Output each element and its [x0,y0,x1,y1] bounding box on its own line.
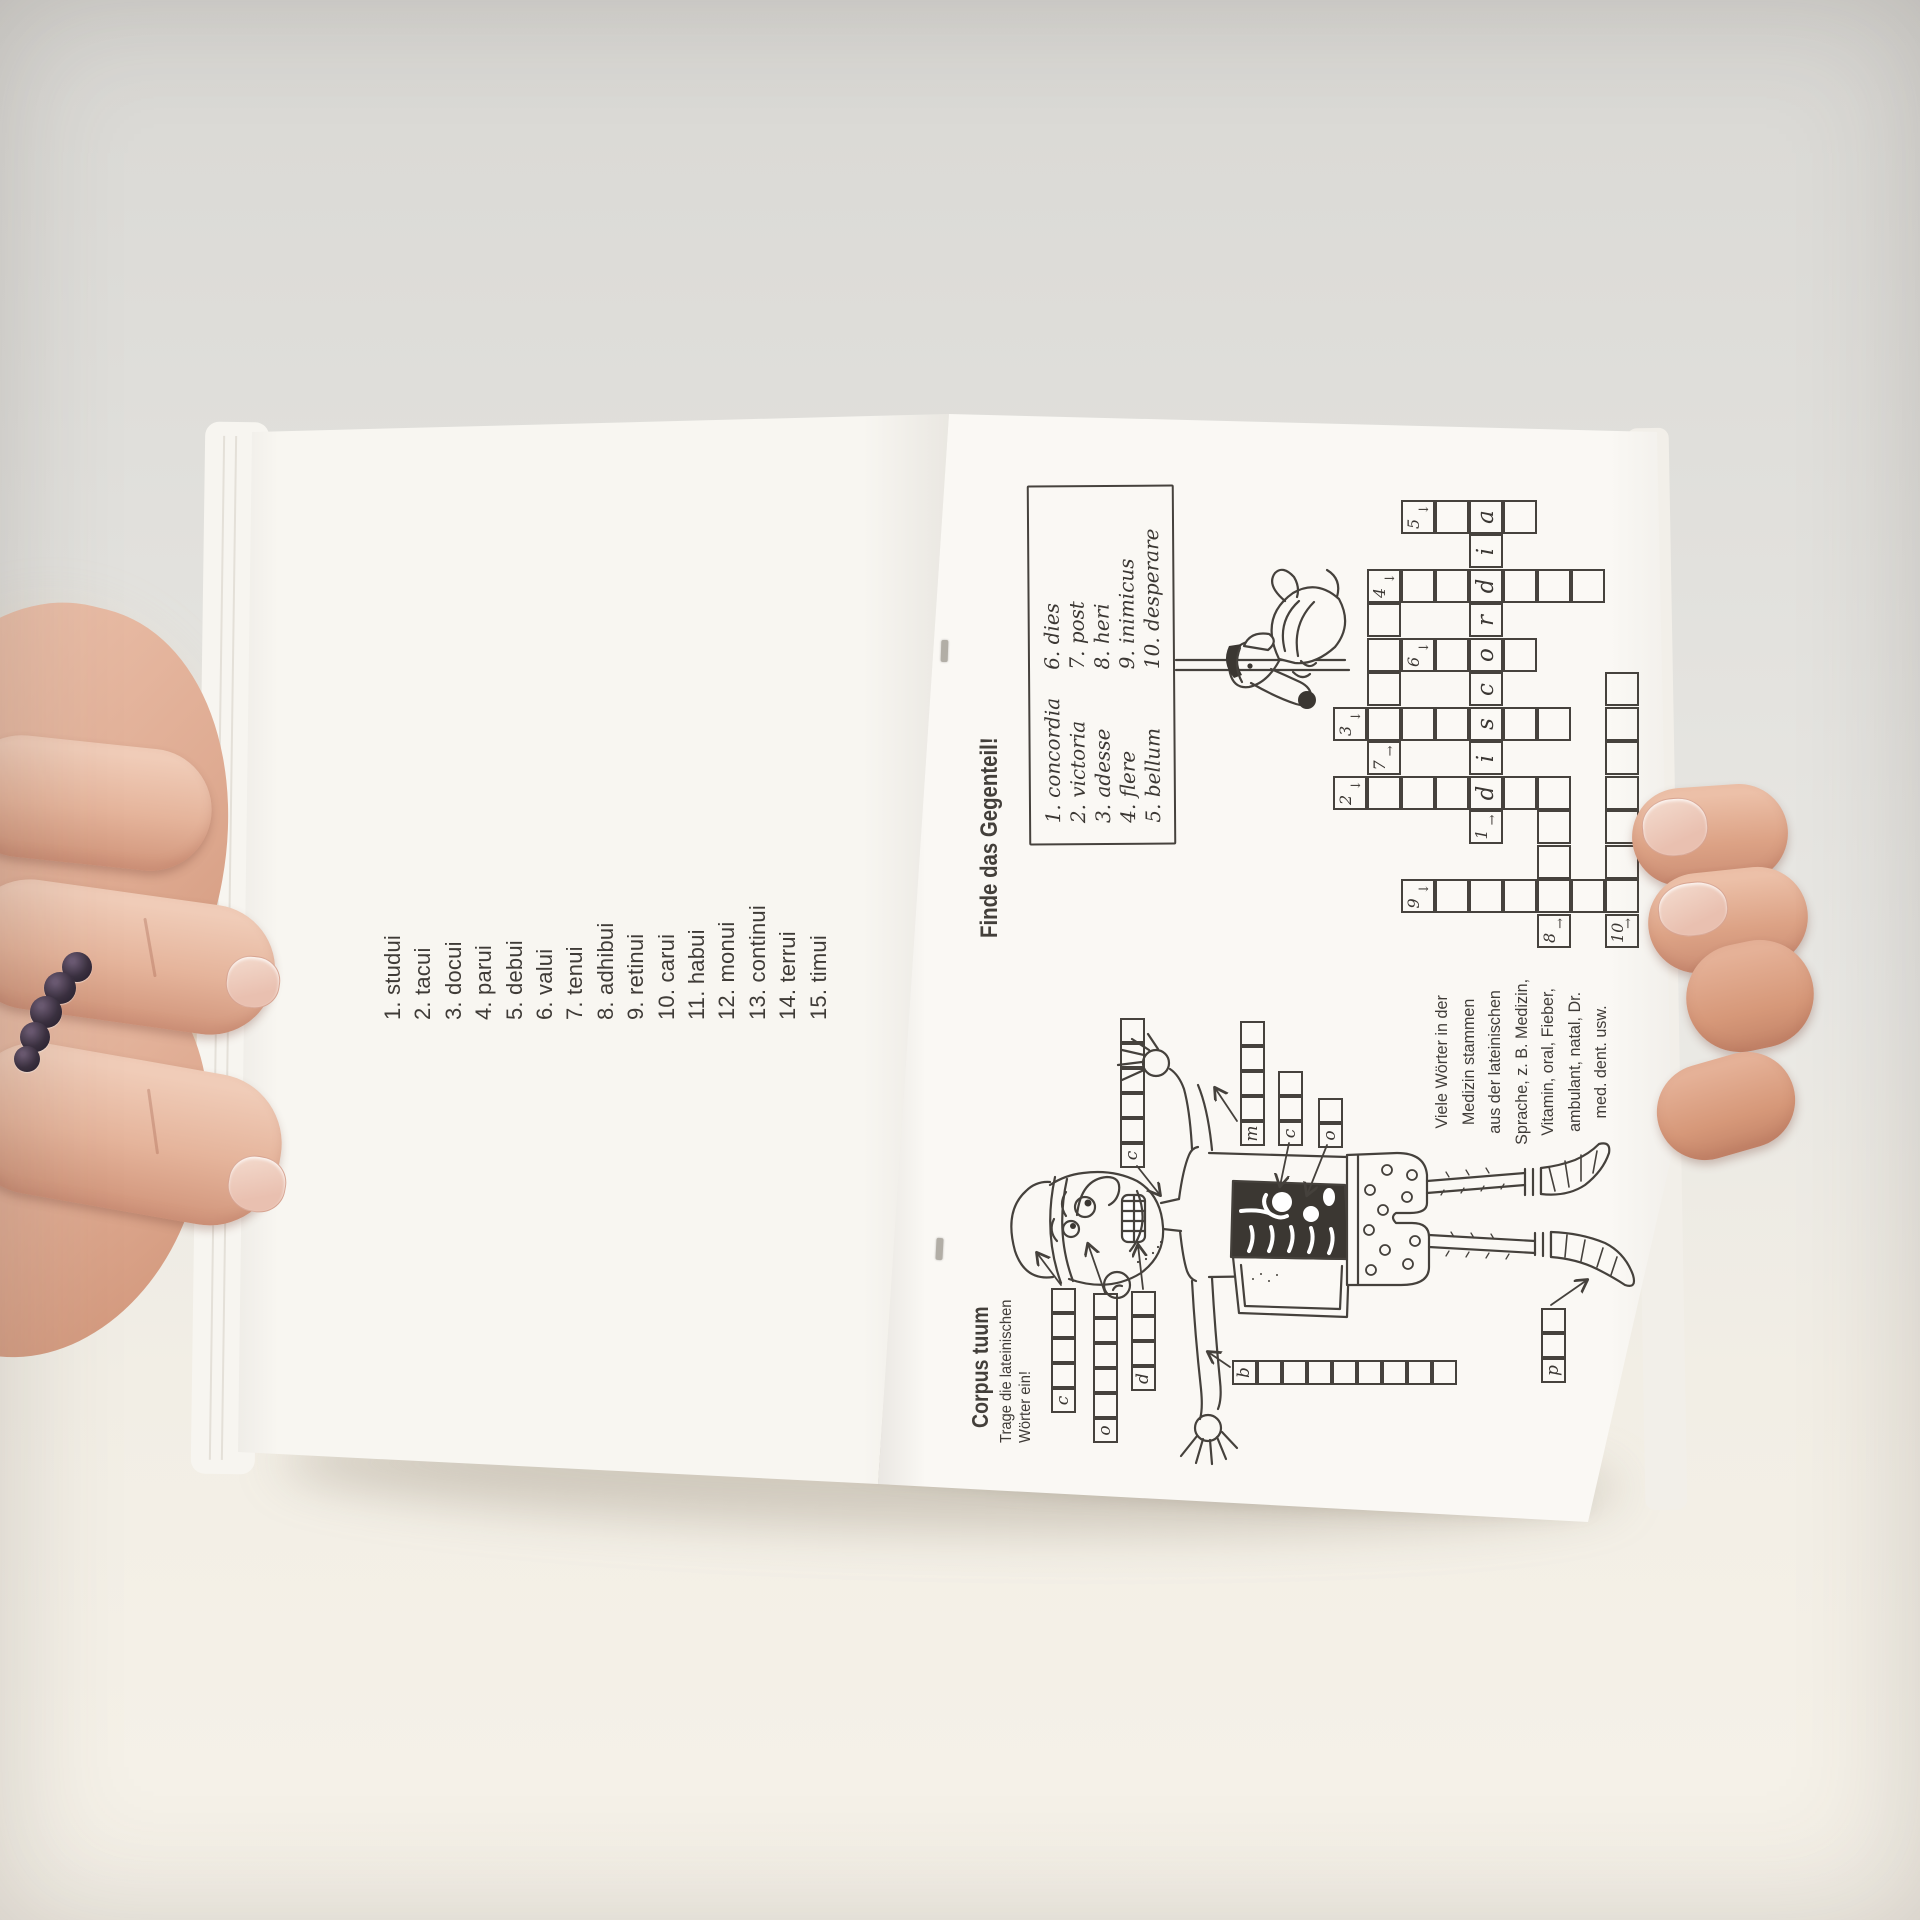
book-page-left: 1. studui2. tacui3. docui4. parui5. debu… [228,414,949,1486]
verb-list-item: 9. retinui [621,905,651,1020]
verb-list-item: 12. monui [712,905,742,1020]
dog-cartoon-icon [1226,570,1345,709]
verb-list-item: 1. studui [378,905,408,1020]
cartoon-illustrations [949,414,1672,1547]
saddle-stitch-staple [935,1238,943,1260]
photo-open-workbook-scene: 1. studui2. tacui3. docui4. parui5. debu… [0,0,1920,1920]
verb-list-item: 8. adhibui [591,905,621,1020]
verb-list-item: 2. tacui [408,905,438,1020]
verb-list-item: 13. continui [743,905,773,1020]
verb-list-item: 6. valui [530,905,560,1020]
verb-list-item: 7. tenui [560,905,590,1020]
latin-verb-list: 1. studui2. tacui3. docui4. parui5. debu… [378,905,834,1020]
cartoon-man [1011,1034,1634,1464]
signpost-pole [1176,660,1349,670]
verb-list-item: 5. debui [500,905,530,1020]
verb-list-item: 10. carui [652,905,682,1020]
verb-list-item: 15. timui [804,905,834,1020]
verb-list-item: 4. parui [469,905,499,1020]
saddle-stitch-staple [941,640,949,662]
verb-list-item: 14. terrui [773,905,803,1020]
book-page-right: Finde das Gegenteil! 1. concordia2. vict… [878,414,1672,1526]
verb-list-item: 3. docui [439,905,469,1020]
verb-list-item: 11. habui [682,905,712,1020]
